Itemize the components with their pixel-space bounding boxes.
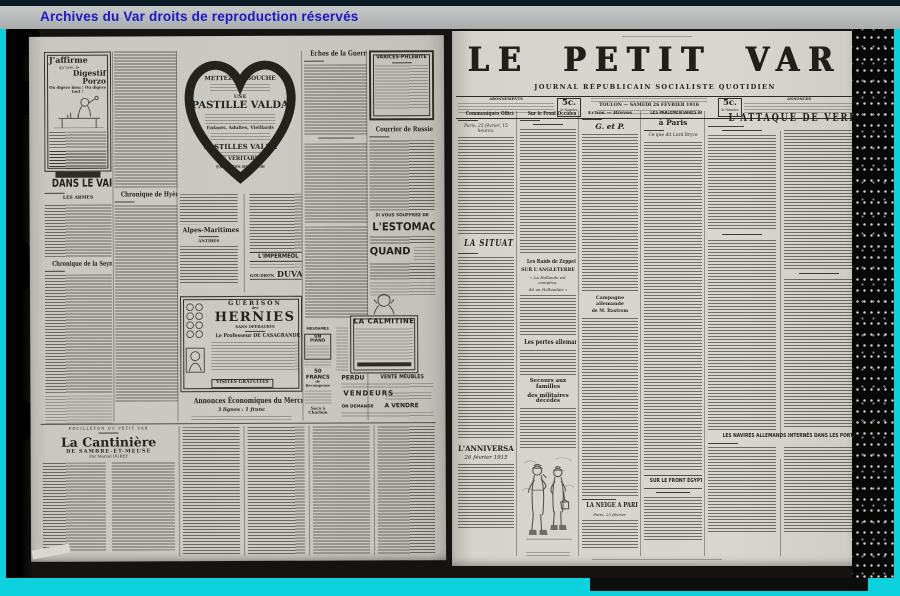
visites-gratuites-label: VISITES GRATUITES (211, 379, 273, 388)
classified-label: UN PIANO (306, 335, 329, 344)
ad-line: QUAND (370, 247, 411, 260)
text-block (341, 412, 433, 418)
estomac-ad-line1: SI VOUS SOUFFREZ DE (370, 213, 435, 218)
column-rule (516, 111, 517, 556)
headline-la-situation: LA SITUATION (458, 240, 514, 250)
text-block (45, 395, 112, 424)
masthead: LE PETIT VAR JOURNAL RÉPUBLICAIN SOCIALI… (452, 43, 858, 91)
rule (199, 236, 219, 237)
rule (644, 475, 702, 476)
text-block (520, 129, 576, 255)
ad-line: J'affirme (49, 56, 108, 65)
text-block (458, 257, 514, 440)
left-column-1: J'affirme qu'avec le Digestif Porzo On d… (44, 52, 113, 424)
text-block (313, 426, 371, 554)
newspaper-left-page: J'affirme qu'avec le Digestif Porzo On d… (29, 35, 446, 562)
rule (458, 253, 478, 254)
feuilleton-rubric: FEUILLETON DU PETIT VAR (43, 426, 175, 431)
price-value: 5c. (719, 99, 741, 108)
text-block (248, 427, 306, 555)
abonnements-label: ABONNEMENTS (458, 98, 554, 102)
headline-alpes-maritimes: Alpes-Maritimes (180, 227, 238, 235)
feuilleton-byline: Par Marcel DUREY (43, 454, 175, 459)
subhead-les-armes: LES ARMES (45, 196, 112, 201)
scan-area[interactable]: J'affirme qu'avec le Digestif Porzo On d… (6, 29, 894, 578)
ad-line: LES VÉRITABLES (190, 157, 290, 163)
headline-chronique-seyne: Chronique de la Seyne (45, 260, 112, 267)
anniversaire-date: 26 février 1915 (458, 456, 514, 462)
left-column-4: Echos de la Guerre (304, 49, 368, 325)
column-rule (704, 111, 705, 556)
text-block (250, 194, 303, 250)
subhead-angleterre: SUR L'ANGLETERRE (520, 269, 576, 274)
verdun-subcol-left (708, 130, 776, 430)
text-block (369, 140, 434, 210)
text-block (582, 318, 638, 496)
text-block (784, 447, 854, 533)
headline-front-egyptien: SUR LE FRONT ÉGYPTIEN (644, 479, 702, 485)
classified-mesdames: MESDAMES (304, 328, 331, 332)
rule (245, 331, 265, 332)
digestif-porzo-ad: J'affirme qu'avec le Digestif Porzo On d… (44, 52, 112, 172)
calmitine-ad: LA CALMITINE (350, 291, 418, 373)
feuilleton-block: FEUILLETON DU PETIT VAR La Cantinière DE… (43, 426, 176, 551)
ad-line: METTEZ EN BOUCHE (190, 76, 290, 83)
subhead-block (533, 124, 563, 127)
book-bottom-shadow (590, 578, 868, 591)
cartoon-caption (526, 552, 570, 556)
mini-classifieds: MESDAMES UN PIANO 50 FRANCS de Récompens… (304, 328, 331, 416)
text-block (375, 65, 428, 109)
copyright-text: Archives du Var droits de reproduction r… (40, 9, 359, 24)
page-footer-block (592, 559, 722, 562)
masthead-title: LE PETIT VAR (452, 41, 858, 80)
text-block (370, 263, 435, 279)
ad-line: LA CALMITINE (353, 318, 415, 326)
left-column-5: VARICES-PHLÉBITE Courrier de Russie SI V… (369, 50, 435, 295)
text-block (385, 392, 431, 400)
rule (391, 62, 411, 63)
rule (99, 433, 119, 434)
impermeol-ad: L'IMPERMÉOL (250, 252, 303, 263)
duval-ad: GOUDRON DUVAL (250, 270, 303, 279)
rule (582, 499, 616, 500)
text-block (304, 391, 331, 405)
column-rule (640, 111, 641, 556)
text-block (708, 240, 776, 430)
classified-on-demande: ON DEMANDE (341, 404, 373, 409)
headline-echos-guerre: Echos de la Guerre (304, 49, 367, 57)
center-subcolumns: Alpes-Maritimes ANTIBES L'IMPERMÉOL GOUD… (180, 194, 302, 293)
rule (45, 271, 65, 272)
subhead-block (656, 492, 690, 495)
text-block (45, 274, 113, 392)
ad-line: EN BOITES DE 1 fr. 50 (195, 165, 285, 169)
medals-illustration (185, 302, 207, 344)
rule (458, 120, 478, 121)
right-column-2: Sur le Front Occidental Les Raids de Zep… (520, 111, 576, 556)
rule (520, 120, 540, 121)
text-block (622, 36, 692, 39)
column-rule (309, 426, 311, 556)
text-block (49, 151, 106, 169)
text-block (784, 279, 854, 427)
rule (45, 193, 65, 194)
text-block (304, 143, 367, 223)
text-block (414, 247, 435, 260)
classified-a-vendre: A VENDRE (384, 403, 418, 410)
headline-secours-familles-2: des militaires décédés (520, 394, 576, 406)
text-block (43, 463, 106, 551)
text-block (582, 520, 638, 548)
annonces-eco-sub: 3 lignes : 1 franc (180, 408, 302, 414)
text-block (250, 264, 303, 270)
text-block (341, 383, 433, 388)
ad-line: On digère bien ! On digère tout ! (47, 85, 108, 93)
headline-attaque-verdun: L'ATTAQUE DE VERDUN (708, 111, 854, 123)
headline-chronique-hyeres: Chronique de Hyères (115, 191, 178, 199)
subhead-block (722, 130, 762, 133)
right-column-1: Communiqués Officiels Paris, 25 février,… (458, 111, 514, 556)
text-block (520, 408, 576, 448)
headline-front-occidental: Sur le Front Occidental (520, 111, 576, 117)
valda-heart-ad: METTEZ EN BOUCHE UNE PASTILLE VALDA Enfa… (179, 52, 302, 187)
left-column-2: Chronique de Hyères (114, 51, 179, 423)
estomac-ad-line2: L'ESTOMAC (370, 221, 435, 233)
headline-g-et-p: G. et P. (582, 123, 638, 131)
text-block (304, 64, 367, 134)
verdun-subcol-right (784, 130, 854, 430)
headline-raids-zeppelins: Les Raids de Zeppelins (520, 259, 576, 265)
text-block (336, 328, 348, 372)
text-block (591, 98, 707, 103)
casagrande-portrait (185, 347, 205, 373)
text-block (45, 204, 112, 256)
text-block (49, 132, 106, 148)
classified-recompense: de Récompense (304, 381, 331, 389)
subhead-bastrom: de M. Bastrom (582, 310, 638, 315)
headline-parlementaires-anglais: LES PARLEMENTAIRES ANGLAIS (644, 111, 702, 116)
column-rule (374, 425, 376, 555)
headline-a-paris: à Paris (644, 119, 702, 127)
subhead-block (318, 137, 354, 140)
text-block (210, 133, 270, 141)
headline-pertes-allemandes: Les pertes allemandes (520, 340, 576, 346)
rule (644, 130, 664, 131)
headline-anniversaire: L'ANNIVERSAIRE (458, 445, 514, 453)
feuilleton-title: La Cantinière (43, 435, 175, 449)
price-value: 5c. (558, 99, 580, 108)
text-block (306, 346, 329, 358)
feuilleton-text (43, 463, 175, 552)
classified-sacs: Sacs à Charbon (304, 407, 331, 416)
text-block (205, 114, 275, 124)
subhead-lord-bryce: Ce que dit Lord Bryce (644, 134, 702, 139)
communique-dateline: Paris, 25 février, 15 heures. (458, 124, 514, 134)
masthead-subtitle: JOURNAL RÉPUBLICAIN SOCIALISTE QUOTIDIEN (452, 84, 858, 91)
zeppelin-quote-2: dit un Hollandais » (520, 288, 576, 292)
column-rule (179, 426, 181, 556)
headline-communiques-officiels: Communiqués Officiels (458, 111, 514, 117)
text-block (180, 246, 238, 284)
headline-secours-familles-1: Secours aux familles (520, 379, 576, 391)
ad-line: Le Professeur DE CASAGRANDE (211, 334, 299, 340)
hernies-ad-text: GUÉRISON des HERNIES SANS OPÉRATION Le P… (211, 301, 299, 372)
classified-piano: UN PIANO (304, 333, 331, 359)
text-block (582, 134, 638, 292)
varices-ad: VARICES-PHLÉBITE (369, 50, 434, 120)
ad-line: PASTILLES VALDA (190, 143, 290, 151)
ad-line: Digestif Porzo (47, 69, 106, 85)
text-block (458, 464, 514, 530)
annonces-label: ANNONCES (744, 98, 854, 102)
hernies-ad: GUÉRISON des HERNIES SANS OPÉRATION Le P… (180, 296, 302, 393)
text-block (458, 137, 514, 235)
ad-line: PASTILLE VALDA (190, 101, 290, 112)
column-rule (244, 426, 246, 556)
text-block (378, 426, 436, 554)
classified-vente-meubles: VENTE MEUBLES (380, 375, 431, 381)
text-block (370, 236, 435, 244)
headline-neige-paris: LA NEIGE A PARIS (582, 503, 638, 510)
calmitine-box: LA CALMITINE (350, 315, 418, 373)
zeppelin-quote-1: « La Hollande est complice, (520, 276, 576, 285)
ad-line: Enfants, Adultes, Vieillards (190, 127, 290, 132)
text-block (520, 350, 576, 376)
headline-echos-breves: Échos — Brèves (582, 111, 638, 116)
text-block (183, 427, 241, 555)
text-block (211, 342, 299, 372)
subhead-antibes: ANTIBES (180, 239, 238, 244)
archive-viewer: Archives du Var droits de reproduction r… (0, 0, 900, 596)
subcol-right: L'IMPERMÉOL GOUDRON DUVAL (244, 194, 303, 292)
rule (304, 60, 324, 61)
text-block (114, 51, 178, 187)
neige-dateline: Paris, 25 février. (582, 512, 638, 517)
soldiers-cartoon (520, 451, 576, 549)
rule (115, 202, 135, 203)
text-block (644, 497, 702, 541)
subhead-block (799, 273, 839, 276)
subcol-left: Alpes-Maritimes ANTIBES (180, 194, 238, 292)
newspaper-right-page: LE PETIT VAR JOURNAL RÉPUBLICAIN SOCIALI… (452, 31, 858, 566)
calmitine-illustration (369, 291, 399, 315)
text-block (192, 416, 292, 420)
text-block (180, 194, 238, 224)
headline-navires-allemands: LES NAVIRES ALLEMANDS INTERNÉS DANS LES … (708, 434, 854, 440)
text-block (115, 206, 179, 402)
section-dans-le-var: DANS LE VAR (44, 178, 111, 190)
ad-line: SANS OPÉRATION (211, 325, 299, 329)
classified-perdu: PERDU (341, 375, 364, 382)
text-block (355, 328, 413, 360)
headline-courrier-russie: Courrier de Russie (369, 126, 434, 134)
rule (582, 119, 602, 120)
rule (708, 443, 738, 444)
porzo-illustration (50, 96, 106, 130)
quand-ad: QUAND (370, 247, 435, 260)
text-block (784, 130, 854, 270)
subhead-campagne-allemande: Campagne allemande (582, 296, 638, 306)
text-block (708, 447, 776, 533)
edition-dateline: TOULON — SAMEDI 26 FÉVRIER 1916 (583, 104, 715, 109)
subhead-block (722, 234, 762, 237)
right-column-3: Échos — Brèves G. et P. Campagne alleman… (582, 111, 638, 556)
text-block (112, 463, 175, 551)
ad-dark-bar (357, 362, 411, 366)
column-rule (578, 111, 579, 556)
verdun-text-columns (708, 130, 854, 430)
text-block (520, 295, 576, 337)
navires-text-columns (708, 447, 854, 533)
book-right-edge (852, 29, 894, 578)
text-block (210, 84, 270, 93)
rule (644, 488, 702, 489)
text-block (644, 142, 702, 472)
copyright-banner: Archives du Var droits de reproduction r… (0, 6, 900, 29)
rule (369, 137, 389, 138)
text-block (708, 135, 776, 231)
right-column-4: LES PARLEMENTAIRES ANGLAIS à Paris Ce qu… (644, 111, 702, 556)
ad-line: VARICES-PHLÉBITE (373, 55, 430, 60)
annonces-eco-title: Annonces Économiques du Mercredi (180, 397, 302, 406)
left-column-center: METTEZ EN BOUCHE UNE PASTILLE VALDA Enfa… (179, 52, 303, 424)
right-column-verdun: L'ATTAQUE DE VERDUN LES NAVIRE (708, 111, 854, 556)
rule (708, 126, 744, 127)
text-block (304, 362, 331, 368)
